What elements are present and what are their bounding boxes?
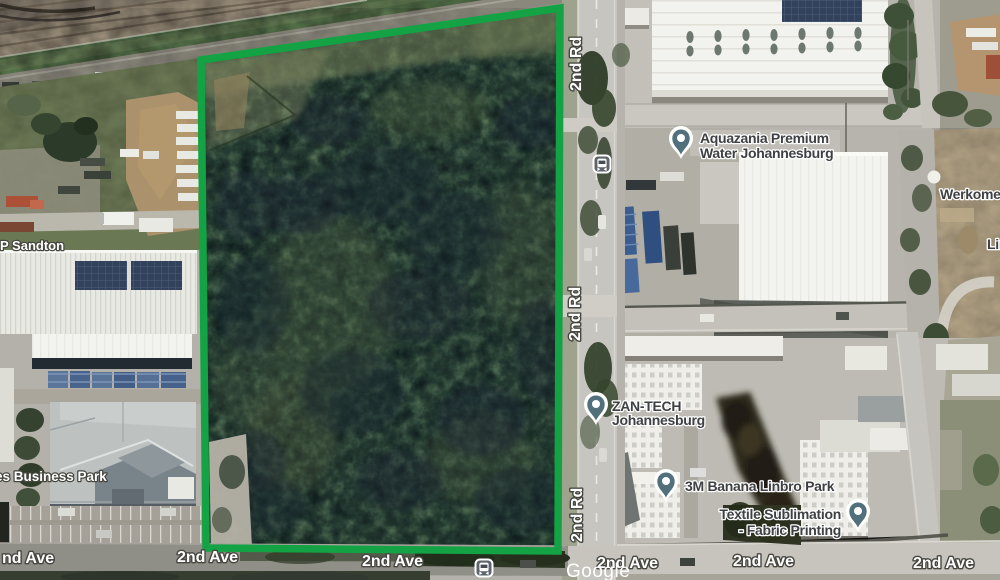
svg-text:- Fabric Printing: - Fabric Printing (739, 522, 841, 538)
svg-text:Textile Sublimation: Textile Sublimation (719, 506, 841, 522)
svg-text:2nd Ave: 2nd Ave (733, 553, 794, 570)
svg-text:Aquazania Premium: Aquazania Premium (700, 130, 829, 146)
svg-text:2nd Ave: 2nd Ave (913, 555, 974, 572)
svg-text:nd Ave: nd Ave (2, 550, 54, 567)
svg-text:Water Johannesburg: Water Johannesburg (700, 145, 833, 161)
svg-text:P Sandton: P Sandton (0, 238, 64, 253)
svg-text:2nd Ave: 2nd Ave (177, 549, 238, 566)
svg-text:Johannesburg: Johannesburg (612, 412, 705, 428)
svg-text:Google: Google (566, 561, 630, 580)
svg-text:2nd Ave: 2nd Ave (362, 553, 423, 570)
svg-text:Werkome: Werkome (940, 186, 1000, 202)
svg-text:3M Banana Linbro Park: 3M Banana Linbro Park (685, 478, 835, 494)
svg-text:2nd Rd: 2nd Rd (567, 287, 584, 341)
svg-text:es Business Park: es Business Park (0, 469, 107, 484)
svg-text:Lin: Lin (987, 236, 1000, 252)
svg-text:2nd Rd: 2nd Rd (568, 37, 585, 91)
svg-text:2nd Rd: 2nd Rd (569, 488, 586, 542)
